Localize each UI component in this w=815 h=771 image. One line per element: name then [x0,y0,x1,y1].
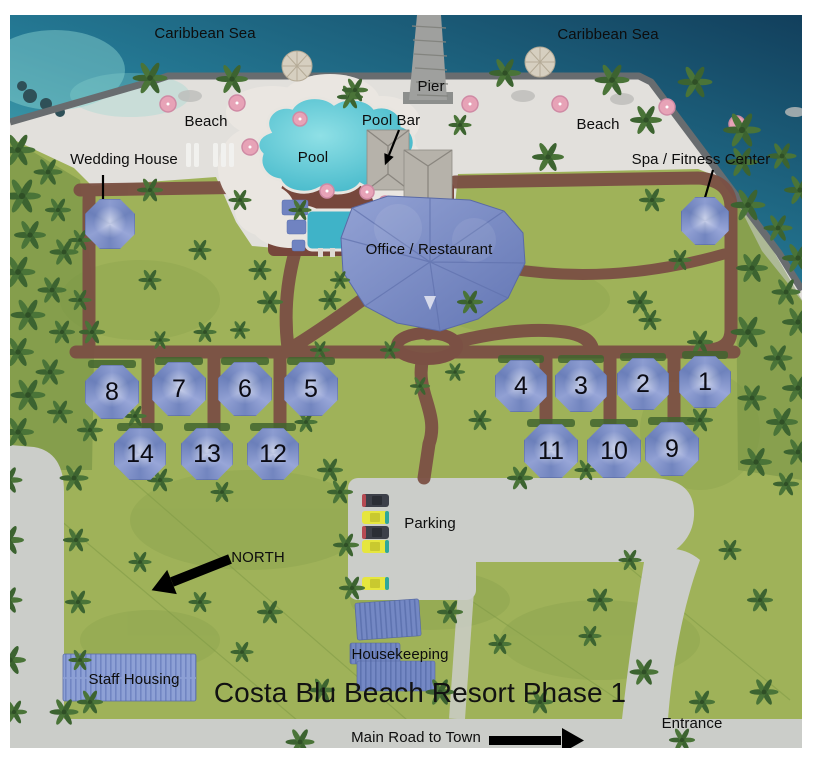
tent-number: 14 [114,428,166,480]
tent-number: 12 [247,428,299,480]
resort-title: Costa Blu Beach Resort Phase 1 [214,678,626,709]
sea-label-left: Caribbean Sea [154,26,255,43]
main-road-label: Main Road to Town [351,730,481,747]
tent-cabin-1: 1 [679,356,731,408]
entrance-label: Entrance [662,716,723,733]
tent-cabin-6: 6 [218,362,272,416]
access-road [460,478,694,562]
tent-number: 9 [645,422,699,476]
tent-number: 13 [181,428,233,480]
beach-label-right: Beach [576,117,619,134]
tent-number: 6 [218,362,272,416]
office-restaurant-label: Office / Restaurant [366,242,493,259]
resort-map: Caribbean Sea Caribbean Sea Pier Beach B… [0,0,815,771]
housekeeping-label: Housekeeping [351,647,448,664]
spa-fitness-label: Spa / Fitness Center [632,152,771,169]
tent-cabin-2: 2 [617,358,669,410]
tent-number: 5 [284,362,338,416]
tent-number: 2 [617,358,669,410]
wedding-house-label: Wedding House [70,152,178,169]
tent-number: 7 [152,362,206,416]
tent-cabin-4: 4 [495,360,547,412]
tent-number: 3 [555,360,607,412]
tent-cabin-7: 7 [152,362,206,416]
tent-number: 10 [587,424,641,478]
tent-roof [681,197,729,245]
beach-label-left: Beach [184,114,227,131]
tent-number: 8 [85,365,139,419]
tent-cabin-8: 8 [85,365,139,419]
wedding-house-tent [85,199,135,249]
tent-cabin-12: 12 [247,428,299,480]
tent-cabin-11: 11 [524,424,578,478]
tent-cabin-3: 3 [555,360,607,412]
tent-number: 1 [679,356,731,408]
parking-label: Parking [404,516,456,533]
staff-housing-label: Staff Housing [88,672,179,689]
spa-fitness-tent [681,197,729,245]
tent-number: 11 [524,424,578,478]
pier-label: Pier [417,79,444,96]
sea-label-right: Caribbean Sea [557,27,658,44]
tent-cabin-9: 9 [645,422,699,476]
tent-roof [85,199,135,249]
pool-label: Pool [298,150,328,167]
tent-cabin-5: 5 [284,362,338,416]
tent-cabin-13: 13 [181,428,233,480]
tent-cabin-10: 10 [587,424,641,478]
tent-cabin-14: 14 [114,428,166,480]
north-label: NORTH [231,550,285,567]
pool-bar-label: Pool Bar [362,113,420,130]
tent-number: 4 [495,360,547,412]
